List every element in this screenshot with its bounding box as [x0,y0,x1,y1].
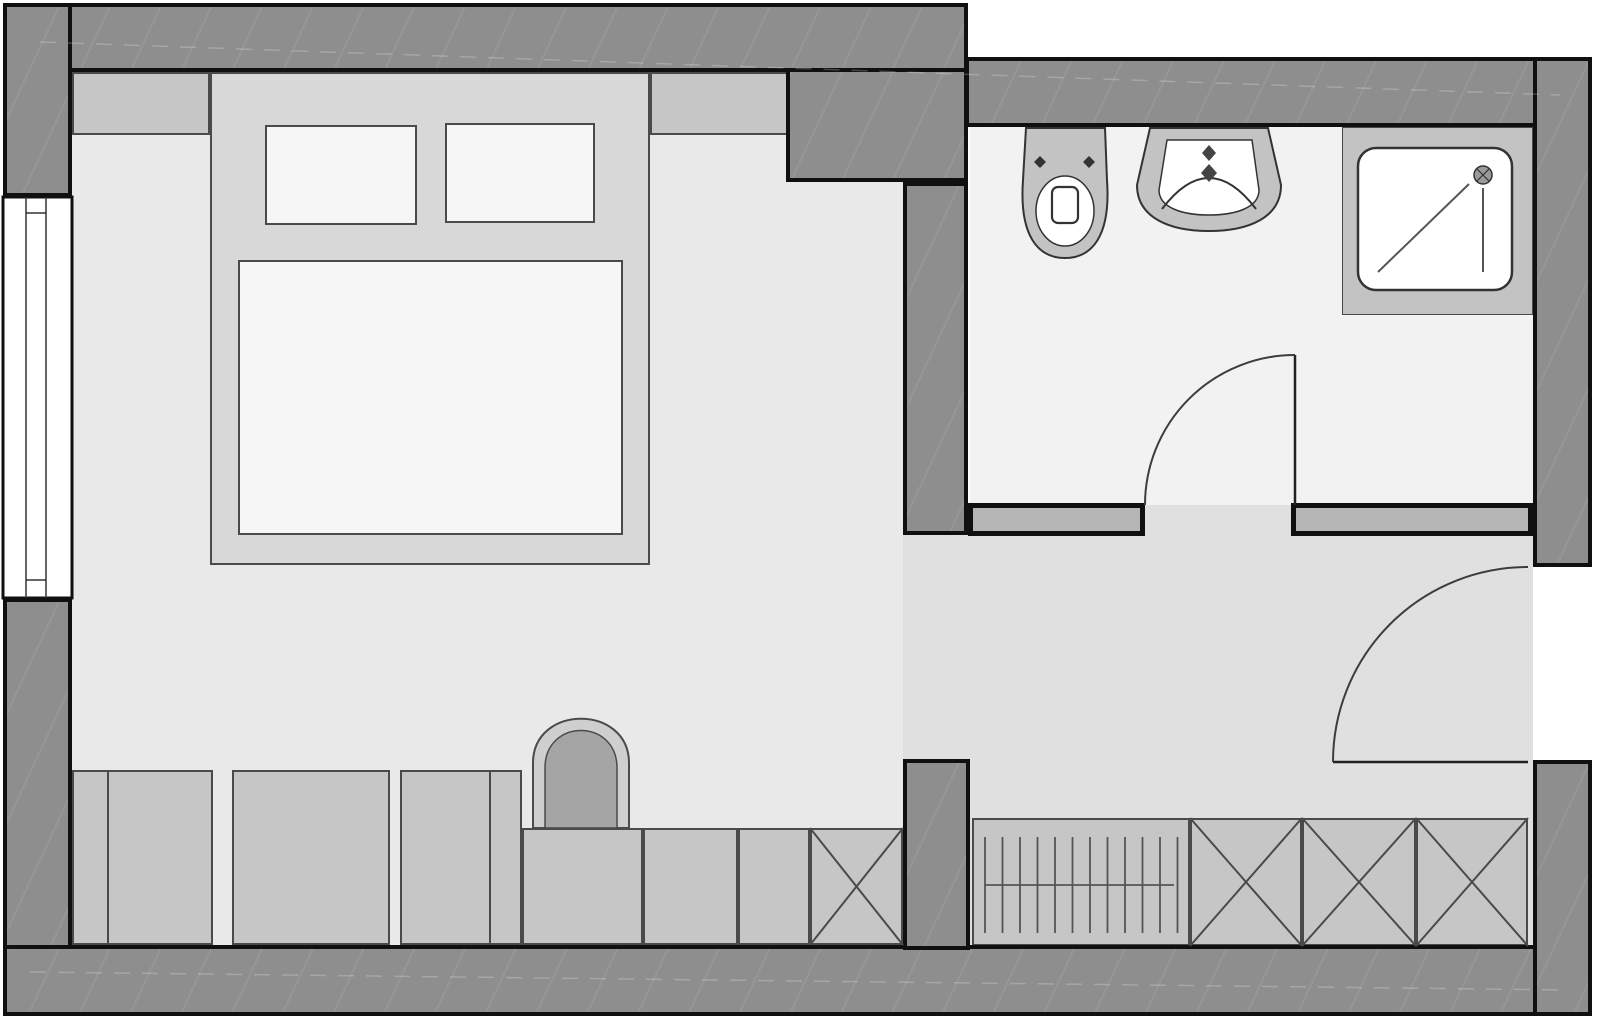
bed-mattress [238,260,623,535]
wall-corner-duct [786,68,968,182]
dresser-unit-a [72,770,213,945]
headboard-shelf-left [72,72,210,135]
wall-left-above-window [3,3,72,197]
closet-crossed-bedroom [810,828,903,945]
wall-bathroom-west [903,182,968,535]
floor-plan-canvas [0,0,1600,1021]
shower-platform [1342,127,1533,315]
lowboard-unit-f [738,828,810,945]
wardrobe-crossed-3 [1416,818,1528,946]
dresser-unit-c [400,770,522,945]
wardrobe-rail-unit [972,818,1190,946]
wall-stub-hall [903,759,970,950]
wardrobe-crossed-1 [1190,818,1302,946]
bed-pillow-right [445,123,595,223]
bed-pillow-left [265,125,417,225]
headboard-shelf-right [650,72,790,135]
wardrobe-crossed-2 [1302,818,1416,946]
wall-top-right-section [965,57,1592,127]
window-frame [3,197,72,598]
wall-bath-south-right [1291,503,1533,536]
wall-right-upper [1533,57,1592,567]
wall-bottom [3,945,1592,1016]
lowboard-unit-e [643,828,738,945]
wall-top-left-section [3,3,968,72]
dresser-unit-b [232,770,390,945]
wall-bath-south-left [968,503,1145,536]
lowboard-unit-d [522,828,643,945]
wall-right-lower [1533,760,1592,1016]
